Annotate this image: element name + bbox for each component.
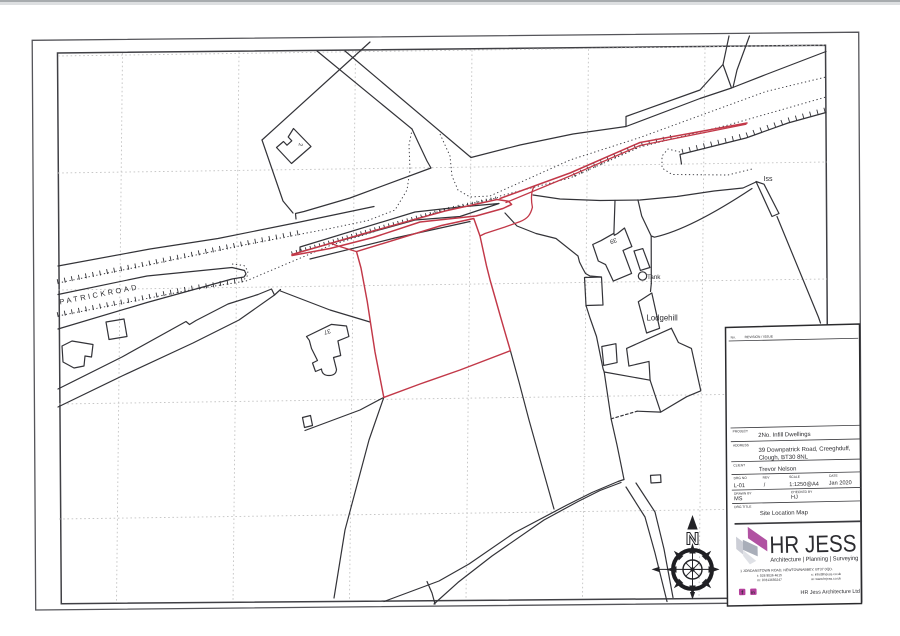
svg-text:Lodgehill: Lodgehill xyxy=(647,314,678,323)
svg-text:1:1250@A4: 1:1250@A4 xyxy=(789,482,819,489)
svg-text:Iss: Iss xyxy=(764,176,773,183)
svg-text:REV: REV xyxy=(763,475,771,479)
svg-text:2No. Infill Dwellings: 2No. Infill Dwellings xyxy=(758,432,810,439)
svg-text:DRG TITLE: DRG TITLE xyxy=(734,505,752,509)
svg-text:2: 2 xyxy=(297,143,303,147)
svg-text:m: 07813693247: m: 07813693247 xyxy=(757,578,782,583)
svg-text:Tank: Tank xyxy=(647,274,661,281)
svg-text:HR Jess Architecture Ltd: HR Jess Architecture Ltd xyxy=(800,589,859,596)
svg-text:SCALE: SCALE xyxy=(789,475,801,479)
svg-text:DRG NO: DRG NO xyxy=(734,476,748,480)
svg-text:Site Location Map: Site Location Map xyxy=(760,510,809,517)
svg-text:in: in xyxy=(751,590,755,595)
svg-text:MS: MS xyxy=(734,496,743,502)
svg-text:DATE: DATE xyxy=(829,474,838,478)
svg-text:Trevor Nelson: Trevor Nelson xyxy=(759,466,797,473)
svg-text:HR JESS: HR JESS xyxy=(769,530,857,559)
svg-text:REVISION / ISSUE: REVISION / ISSUE xyxy=(745,335,774,340)
svg-text:L-01: L-01 xyxy=(734,483,745,489)
svg-text:w: www.hrjess.co.uk: w: www.hrjess.co.uk xyxy=(811,576,841,581)
svg-text:CHECKED BY: CHECKED BY xyxy=(791,490,813,494)
svg-text:CLIENT: CLIENT xyxy=(733,463,745,467)
svg-text:Clough, BT30 8NL: Clough, BT30 8NL xyxy=(759,455,809,462)
svg-text:Jan 2020: Jan 2020 xyxy=(829,480,852,486)
svg-text:DRAWN BY: DRAWN BY xyxy=(734,491,753,495)
svg-text:No.: No. xyxy=(731,335,736,339)
svg-text:ADDRESS: ADDRESS xyxy=(733,443,750,447)
svg-text:PROJECT: PROJECT xyxy=(733,429,748,433)
svg-text:f: f xyxy=(741,590,743,596)
svg-text:HJ: HJ xyxy=(791,495,798,501)
